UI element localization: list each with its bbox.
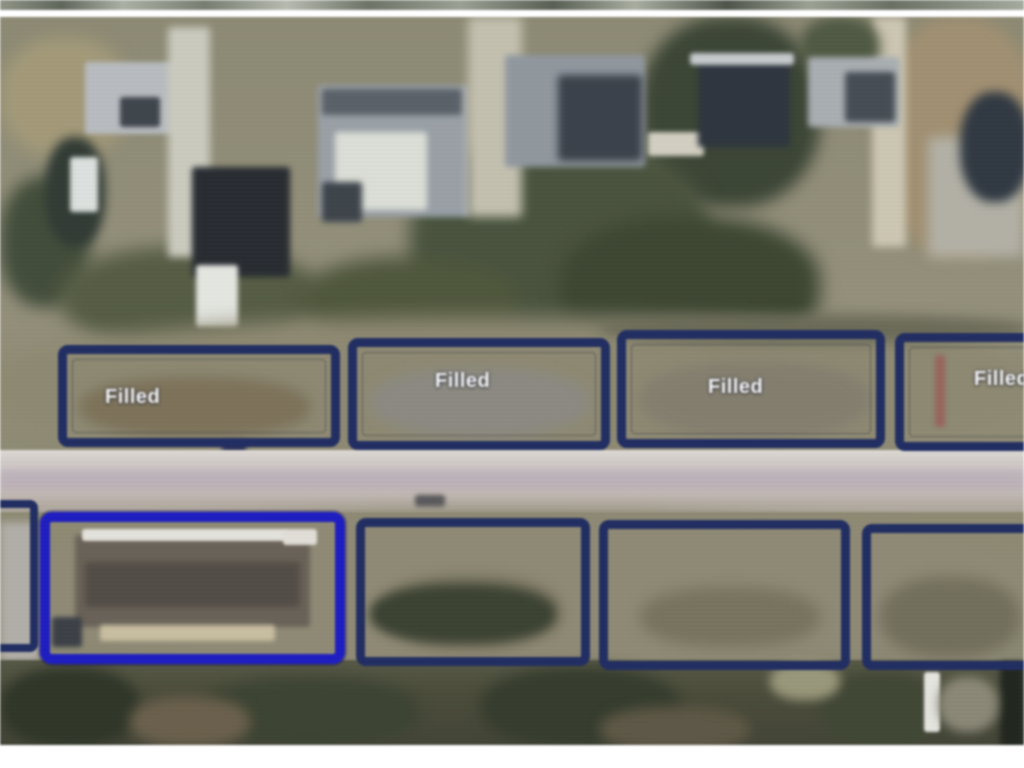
screenshot-canvas: Filled Filled Filled Filled	[0, 0, 1024, 768]
aerial-photo: Filled Filled Filled Filled	[0, 17, 1024, 745]
photo-edge-sliver	[0, 0, 1024, 10]
image-grain-overlay	[0, 17, 1024, 745]
